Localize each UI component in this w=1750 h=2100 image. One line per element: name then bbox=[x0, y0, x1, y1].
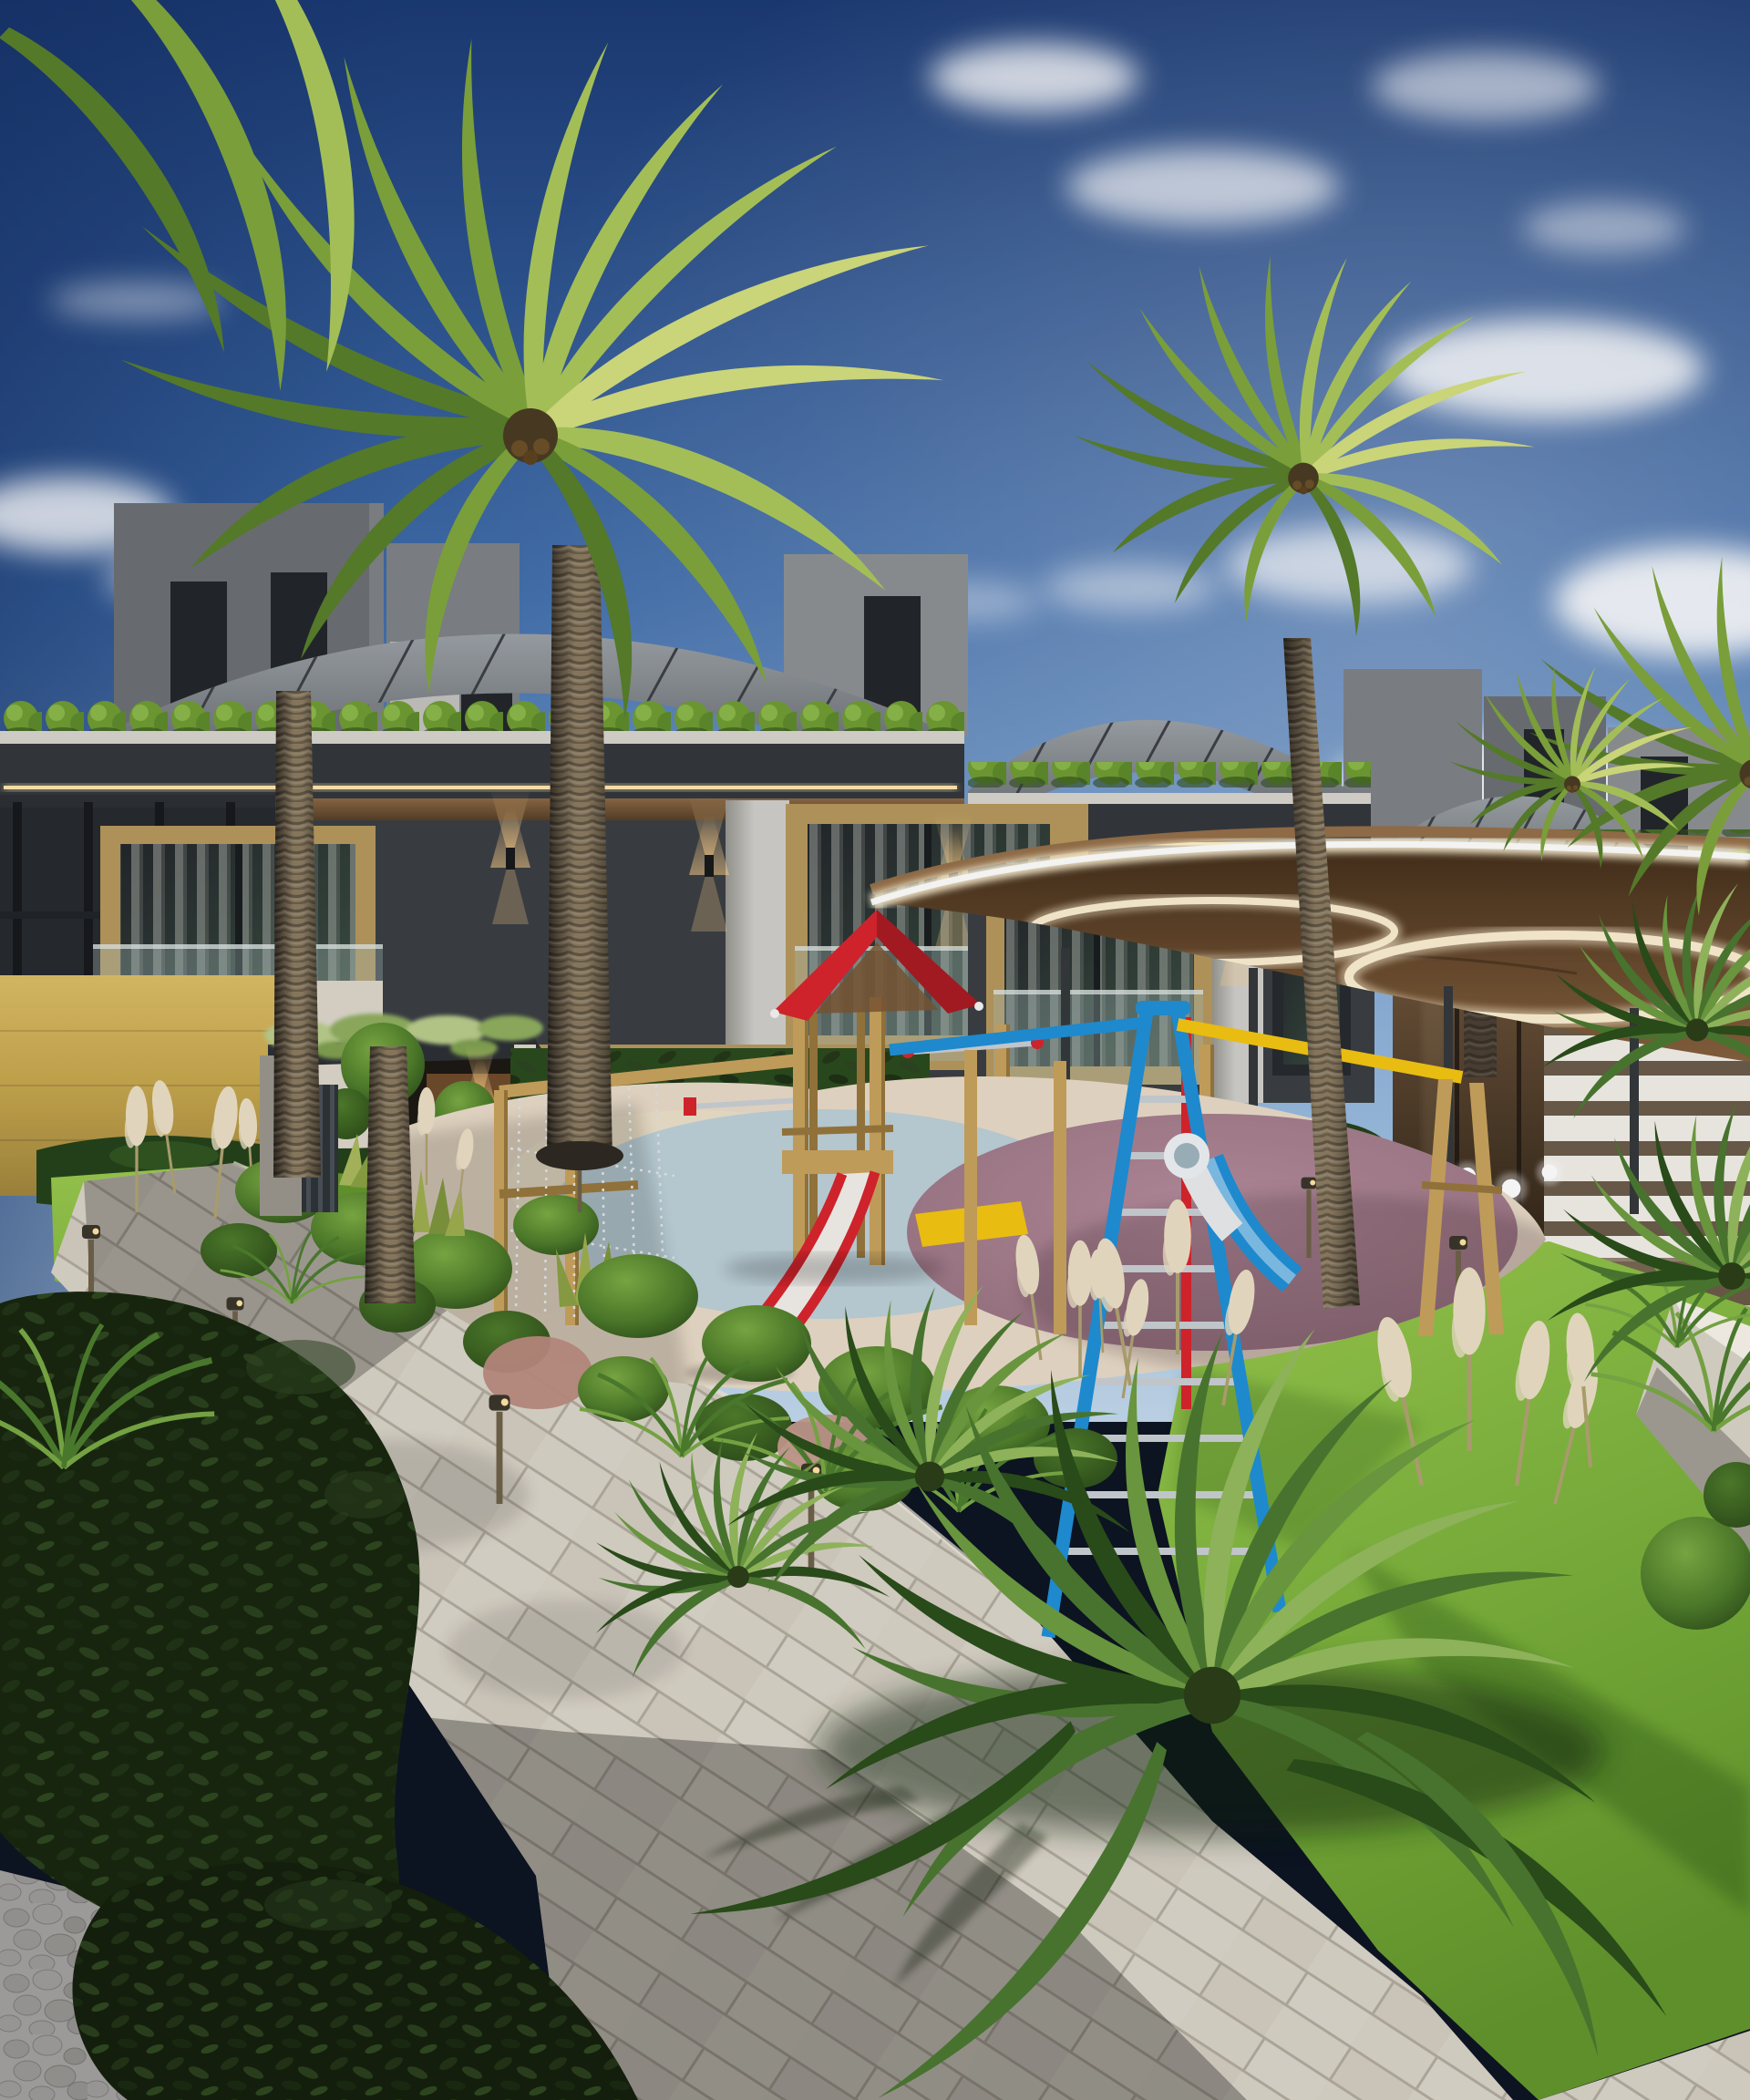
vignette bbox=[0, 0, 1750, 2100]
scene-canvas bbox=[0, 0, 1750, 2100]
architectural-rendering bbox=[0, 0, 1750, 2100]
